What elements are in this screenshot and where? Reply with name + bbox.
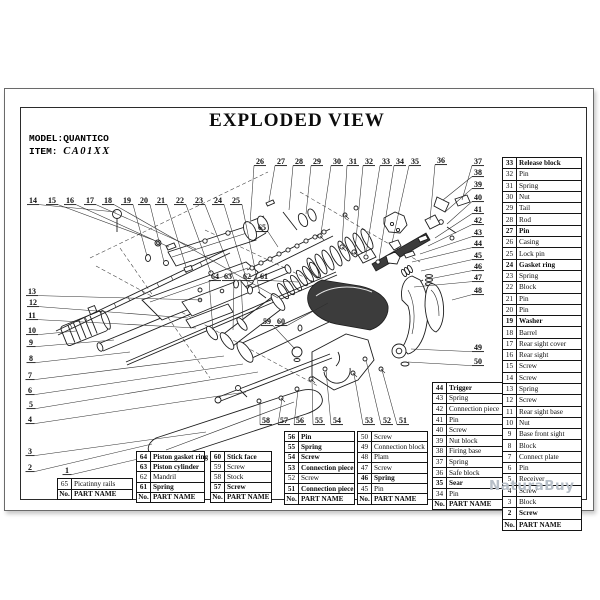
part-no: 45	[358, 484, 372, 493]
part-no: 55	[285, 442, 299, 451]
leader-line	[429, 271, 472, 279]
callout-number: 21	[157, 196, 165, 205]
part-no: 49	[358, 442, 372, 451]
part-no: 29	[503, 203, 517, 213]
part-no: No.	[285, 494, 299, 503]
callout-number: 63	[224, 272, 232, 281]
callout-number: 3	[28, 447, 32, 456]
part-name: Connection piece	[299, 464, 354, 472]
table-header-row: No.PART NAME	[285, 493, 354, 503]
part-row: 48Plam	[358, 452, 427, 462]
callout-number: 9	[29, 338, 33, 347]
part-name: Block	[517, 498, 536, 506]
leader-line	[412, 248, 472, 262]
callout-number: 62	[243, 272, 251, 281]
part-row: 43Spring	[433, 393, 502, 404]
leader-line	[421, 260, 472, 271]
part-row: 65Picatinny rails	[58, 479, 132, 489]
part-no: 17	[503, 339, 517, 349]
part-name: Barrel	[517, 329, 537, 337]
callout-number: 43	[474, 228, 482, 237]
part-no: 25	[503, 248, 517, 258]
part-row: 21Pin	[503, 293, 581, 304]
part-name: Pin	[517, 227, 529, 235]
part-no: 30	[503, 192, 517, 202]
part-no: 27	[503, 226, 517, 236]
callout-number: 52	[383, 416, 391, 425]
part-name: Spring	[447, 394, 468, 402]
part-no: No.	[358, 494, 372, 503]
part-name: Screw	[299, 453, 320, 461]
callout-number: 58	[262, 416, 270, 425]
part-name: Spring	[151, 483, 174, 491]
callout-number: 61	[260, 272, 268, 281]
part-name: Connection piece	[299, 485, 354, 493]
part-row: 62Mandril	[137, 471, 204, 481]
callout-number: 5	[29, 400, 33, 409]
table-2-33: 33Release block32Pin31Spring30Nut29Tail2…	[502, 157, 582, 531]
callout-number: 13	[28, 287, 36, 296]
callout-number: 44	[474, 239, 482, 248]
stock-face-knob	[292, 347, 302, 362]
part-no: 24	[503, 260, 517, 270]
callout-number: 10	[28, 326, 36, 335]
part-no: No.	[433, 500, 447, 510]
part-no: 54	[285, 453, 299, 462]
part-no: 37	[433, 457, 447, 467]
part-no: 59	[211, 462, 225, 471]
callout-number: 33	[382, 157, 390, 166]
callout-number: 12	[29, 298, 37, 307]
part-row: 18Barrel	[503, 326, 581, 337]
part-row: 9Base front sight	[503, 428, 581, 439]
part-no: 61	[137, 483, 151, 492]
part-name: Pin	[517, 464, 529, 472]
leader-line	[36, 372, 259, 409]
callout-number: 54	[333, 416, 341, 425]
part-row: 20Pin	[503, 304, 581, 315]
leader-line	[36, 352, 131, 363]
part-name: Spring	[299, 443, 322, 451]
part-name: Screw	[299, 474, 319, 482]
part-row: 12Screw	[503, 394, 581, 405]
part-no: 46	[358, 474, 372, 483]
part-no: 12	[503, 395, 517, 405]
callout-number: 25	[232, 196, 240, 205]
part-row: 55Spring	[285, 441, 354, 451]
part-no: 53	[285, 463, 299, 472]
callout-number: 16	[66, 196, 74, 205]
part-no: 51	[285, 484, 299, 493]
leader-line	[273, 326, 295, 349]
part-name: Screw	[517, 396, 537, 404]
part-no: 32	[503, 169, 517, 179]
part-no: 13	[503, 384, 517, 394]
part-row: 25Lock pin	[503, 247, 581, 258]
callout-number: 37	[474, 157, 482, 166]
leader-line	[354, 374, 363, 425]
part-no: 41	[433, 415, 447, 425]
part-no: 35	[433, 478, 447, 488]
callout-number: 15	[48, 196, 56, 205]
table-header-row: No.PART NAME	[358, 493, 427, 503]
part-no: 56	[285, 432, 299, 441]
part-row: 32Pin	[503, 168, 581, 179]
part-row: 59Screw	[211, 461, 271, 471]
part-name: Screw	[447, 426, 467, 434]
callout-number: 30	[333, 157, 341, 166]
part-row: 2Screw	[503, 507, 581, 518]
callout-number: 8	[29, 354, 33, 363]
part-no: 7	[503, 452, 517, 462]
part-name: Screw	[517, 362, 537, 370]
part-no: 47	[358, 463, 372, 472]
part-name: Lock pin	[517, 250, 545, 258]
part-row: 45Pin	[358, 483, 427, 493]
part-row: 57Screw	[211, 482, 271, 492]
part-no: 14	[503, 373, 517, 383]
callout-number: 4	[28, 415, 32, 424]
callout-number: 28	[295, 157, 303, 166]
part-name: Spring	[447, 458, 468, 466]
part-no: 65	[58, 479, 72, 489]
callout-number: 53	[365, 416, 373, 425]
part-row: 58Stock	[211, 471, 271, 481]
leader-line	[411, 349, 472, 352]
callout-number: 2	[28, 463, 32, 472]
part-row: 53Connection piece	[285, 462, 354, 472]
callout-number: 59	[263, 317, 271, 326]
part-no: 48	[358, 453, 372, 462]
part-row: 50Screw	[358, 432, 427, 441]
part-name: Block	[517, 283, 536, 291]
part-name: Gasket ring	[517, 261, 555, 269]
part-no: 11	[503, 407, 517, 417]
leader-line	[35, 444, 153, 472]
part-name: Pin	[372, 485, 384, 493]
callout-number: 56	[296, 416, 304, 425]
callout-number: 51	[399, 416, 407, 425]
callout-number: 49	[474, 343, 482, 352]
part-no: 16	[503, 350, 517, 360]
part-row: 61Spring	[137, 482, 204, 492]
part-no: 43	[433, 394, 447, 404]
table-57-60: 60Stick face59Screw58Stock57ScrewNo.PART…	[210, 451, 272, 503]
part-no: 40	[433, 425, 447, 435]
part-name: Pin	[447, 490, 459, 498]
callout-number: 20	[140, 196, 148, 205]
muzzle-assembly	[57, 303, 112, 347]
part-row: 19Washer	[503, 315, 581, 326]
leader-line	[133, 205, 147, 256]
leader-line	[342, 166, 347, 245]
table-header-row: No.PART NAME	[211, 492, 271, 502]
callout-number: 35	[411, 157, 419, 166]
part-name: Pin	[517, 295, 529, 303]
part-name: Connection piece	[447, 405, 499, 413]
part-name: Pin	[447, 416, 459, 424]
end-cap-casing	[241, 200, 318, 242]
callout-number: 36	[437, 156, 445, 165]
part-row: 17Rear sight cover	[503, 338, 581, 349]
part-row: 11Rear sight base	[503, 406, 581, 417]
part-no: 22	[503, 282, 517, 292]
part-row: 27Pin	[503, 225, 581, 236]
callout-number: 46	[474, 262, 482, 271]
part-name: Plam	[372, 453, 389, 461]
part-name: Rear sight cover	[517, 340, 566, 348]
cheek-piece	[308, 280, 388, 330]
part-row: 47Screw	[358, 462, 427, 472]
part-no: 52	[285, 474, 299, 483]
callout-number: 27	[277, 157, 285, 166]
part-no: 23	[503, 271, 517, 281]
part-row: 26Casing	[503, 236, 581, 247]
part-row: 42Connection piece	[433, 403, 502, 414]
table-51-56: 56Pin55Spring54Screw53Connection piece52…	[284, 431, 355, 505]
leader-line	[430, 165, 435, 220]
grip-panel	[425, 284, 444, 332]
leader-line	[96, 205, 196, 249]
part-no: 34	[433, 489, 447, 499]
part-row: 30Nut	[503, 191, 581, 202]
part-name: Screw	[517, 374, 537, 382]
part-row: 40Screw	[433, 424, 502, 435]
part-name: Rear sight base	[517, 408, 563, 416]
leader-line	[150, 205, 164, 262]
part-name: Casing	[517, 238, 539, 246]
part-row: 15Screw	[503, 360, 581, 371]
part-no: 39	[433, 436, 447, 446]
part-no: 62	[137, 472, 151, 481]
part-no: No.	[58, 490, 72, 500]
part-name: Base front sight	[517, 430, 565, 438]
part-name: Pin	[299, 433, 311, 441]
buttstock-frame	[401, 276, 428, 354]
part-name: Safe block	[447, 469, 480, 477]
callout-number: 24	[214, 196, 222, 205]
part-no: 6	[503, 463, 517, 473]
part-no: 42	[433, 404, 447, 414]
watermark: NaturaBuy	[489, 478, 574, 494]
part-no: 50	[358, 432, 372, 441]
part-no: No.	[503, 520, 517, 530]
part-name: Block	[517, 442, 536, 450]
part-name: Piston cylinder	[151, 463, 199, 471]
callout-number: 42	[474, 216, 482, 225]
part-name: Spring	[372, 474, 395, 482]
part-no: 38	[433, 447, 447, 457]
part-name: Connect plate	[517, 453, 559, 461]
part-no: 28	[503, 214, 517, 224]
part-no: No.	[137, 493, 151, 502]
part-row: 37Spring	[433, 456, 502, 467]
part-row: 6Pin	[503, 462, 581, 473]
callout-number: 6	[28, 386, 32, 395]
part-name: Connection block	[372, 443, 425, 451]
part-row: 13Spring	[503, 383, 581, 394]
part-no: 21	[503, 294, 517, 304]
leader-line	[268, 232, 278, 247]
part-name: PART NAME	[372, 495, 416, 503]
callout-number: 23	[195, 196, 203, 205]
callout-number: 17	[86, 196, 94, 205]
part-name: PART NAME	[72, 490, 116, 498]
part-row: 23Spring	[503, 270, 581, 281]
part-no: 26	[503, 237, 517, 247]
part-row: 51Connection piece	[285, 483, 354, 493]
callout-number: 7	[28, 371, 32, 380]
part-no: 63	[137, 462, 151, 471]
leader-line	[269, 166, 275, 201]
part-no: 2	[503, 508, 517, 518]
callout-number: 57	[280, 416, 288, 425]
table-45-50: 50Screw49Connection block48Plam47Screw46…	[357, 431, 428, 505]
table-header-row: No.PART NAME	[433, 499, 502, 510]
callout-number: 65	[258, 223, 266, 232]
part-name: Screw	[372, 464, 392, 472]
callout-number: 39	[474, 180, 482, 189]
part-name: PART NAME	[299, 495, 343, 503]
callout-number: 26	[256, 157, 264, 166]
leader-line	[452, 295, 472, 300]
part-no: 31	[503, 181, 517, 191]
trigger-mechanism-parts	[358, 195, 470, 285]
callout-number: 18	[104, 196, 112, 205]
part-name: Stick face	[225, 453, 257, 461]
part-row: 49Connection block	[358, 441, 427, 451]
part-no: 44	[433, 383, 447, 393]
part-name: Nut block	[447, 437, 478, 445]
part-row: 33Release block	[503, 158, 581, 168]
part-name: Nut	[517, 419, 530, 427]
part-no: 15	[503, 361, 517, 371]
part-no: 20	[503, 305, 517, 315]
callout-number: 41	[474, 205, 482, 214]
part-name: Screw	[225, 483, 246, 491]
part-name: Spring	[517, 182, 538, 190]
part-name: Washer	[517, 317, 543, 325]
part-row: 41Pin	[433, 414, 502, 425]
callout-number: 34	[396, 157, 404, 166]
leader-line	[35, 364, 244, 395]
table-header-row: No.PART NAME	[137, 492, 204, 502]
callout-number: 47	[474, 273, 482, 282]
part-no: 64	[137, 452, 151, 461]
part-row: 7Connect plate	[503, 451, 581, 462]
callout-number: 45	[474, 251, 482, 260]
table-61-64: 64Piston gasket ring63Piston cylinder62M…	[136, 451, 205, 503]
part-no: 58	[211, 472, 225, 481]
part-no: 60	[211, 452, 225, 461]
callout-number: 11	[28, 311, 36, 320]
part-row: 22Block	[503, 281, 581, 292]
part-row: 28Rod	[503, 213, 581, 224]
part-no: 10	[503, 418, 517, 428]
part-no: 18	[503, 327, 517, 337]
part-row: 54Screw	[285, 452, 354, 462]
part-name: Rear sight	[517, 351, 548, 359]
callout-number: 29	[313, 157, 321, 166]
part-row: 63Piston cylinder	[137, 461, 204, 471]
callout-number: 31	[349, 157, 357, 166]
callout-number: 19	[123, 196, 131, 205]
part-name: Screw	[372, 433, 392, 441]
leader-line	[306, 166, 311, 214]
part-no: No.	[211, 493, 225, 502]
callout-number: 32	[365, 157, 373, 166]
part-name: PART NAME	[517, 521, 561, 529]
part-name: Nut	[517, 193, 530, 201]
callout-number: 40	[474, 193, 482, 202]
part-row: 16Rear sight	[503, 349, 581, 360]
part-row: 14Screw	[503, 372, 581, 383]
part-name: Screw	[225, 463, 245, 471]
callout-number: 14	[29, 196, 37, 205]
part-name: Firing base	[447, 447, 481, 455]
part-row: 10Nut	[503, 417, 581, 428]
part-row: 64Piston gasket ring	[137, 452, 204, 461]
callout-number: 64	[211, 272, 219, 281]
part-row: 56Pin	[285, 432, 354, 441]
part-name: Pin	[517, 306, 529, 314]
part-row: 8Block	[503, 439, 581, 450]
part-row: 31Spring	[503, 180, 581, 191]
part-name: Mandril	[151, 473, 176, 481]
part-name: PART NAME	[225, 493, 269, 501]
leader-line	[321, 166, 331, 233]
leader-line	[435, 214, 472, 238]
part-no: 9	[503, 429, 517, 439]
callout-number: 38	[474, 168, 482, 177]
part-name: PART NAME	[151, 493, 195, 501]
part-row: 46Spring	[358, 473, 427, 483]
leader-line	[408, 362, 472, 366]
part-row: 3Block	[503, 496, 581, 507]
part-name: Screw	[517, 509, 538, 517]
part-row: 52Screw	[285, 473, 354, 483]
part-name: Pin	[517, 170, 529, 178]
part-row: 60Stick face	[211, 452, 271, 461]
part-row: 39Nut block	[433, 435, 502, 446]
part-name: Stock	[225, 473, 243, 481]
part-name: Tail	[517, 204, 530, 212]
callout-number: 48	[474, 286, 482, 295]
part-row: 36Safe block	[433, 467, 502, 478]
part-no: 3	[503, 497, 517, 507]
scope-mount	[168, 226, 256, 266]
part-row: 38Firing base	[433, 446, 502, 457]
part-no: 36	[433, 468, 447, 478]
part-name: PART NAME	[447, 500, 491, 508]
callout-number: 55	[315, 416, 323, 425]
part-name: Trigger	[447, 384, 472, 392]
part-row: 44Trigger	[433, 383, 502, 393]
part-name: Release block	[517, 159, 561, 167]
part-name: Piston gasket ring	[151, 453, 208, 461]
part-no: 19	[503, 316, 517, 326]
part-no: 8	[503, 440, 517, 450]
part-name: Spring	[517, 272, 538, 280]
part-name: Sear	[447, 479, 463, 487]
leader-line	[270, 281, 298, 282]
callout-number: 60	[277, 317, 285, 326]
part-no: 33	[503, 158, 517, 168]
part-name: Rod	[517, 216, 531, 224]
table-header-row: No.PART NAME	[58, 489, 132, 500]
leader-line	[250, 166, 254, 224]
table-header-row: No.PART NAME	[503, 519, 581, 530]
